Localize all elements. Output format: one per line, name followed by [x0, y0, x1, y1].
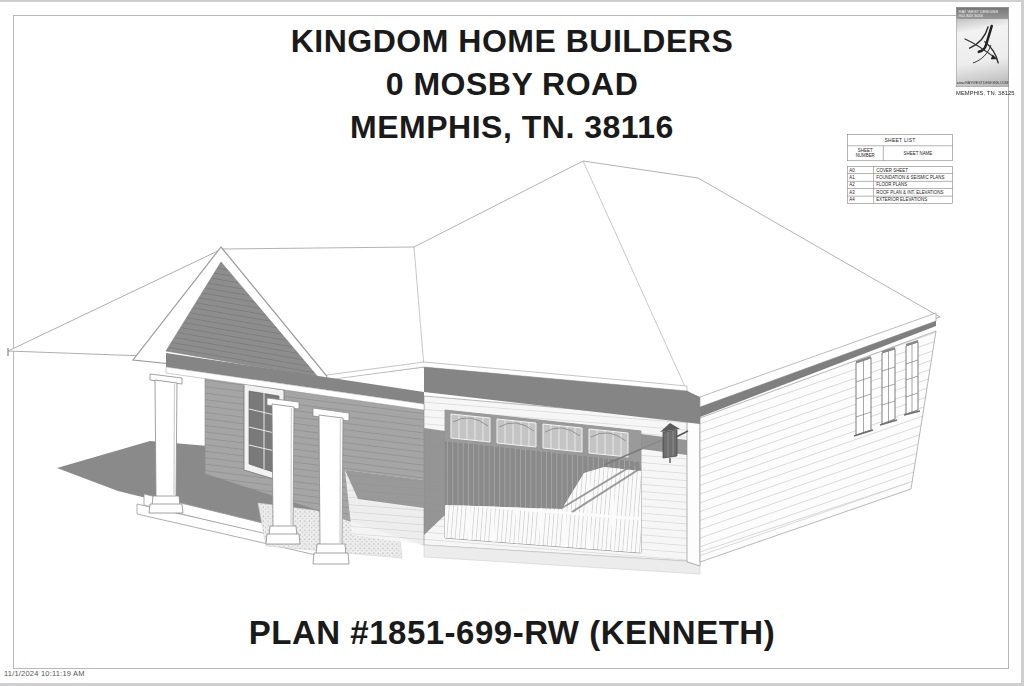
designer-stamp-box: RAY WEST DESIGNS 901 843 3056 www.RAYWES…: [956, 7, 1009, 87]
corner-trim: [687, 409, 700, 566]
site-address: 0 MOSBY ROAD: [212, 63, 812, 106]
sheet-name: FOUNDATION & SEISMIC PLANS: [874, 175, 952, 180]
print-timestamp: 11/1/2024 10:11:19 AM: [4, 669, 85, 678]
designer-phone: 901 843 3056: [959, 14, 1007, 19]
sheet-name: EXTERIOR ELEVATIONS: [874, 197, 952, 202]
designer-website: www.RAYWESTDESIGNS.COM: [957, 81, 1009, 87]
title-block: KINGDOM HOME BUILDERS 0 MOSBY ROAD MEMPH…: [212, 20, 812, 149]
sheet-list-row: A3 ROOF PLAN & INT. ELEVATIONS: [848, 189, 953, 196]
sheet-name: COVER SHEET: [874, 167, 952, 172]
plan-number-label: PLAN #1851-699-RW (KENNETH): [192, 614, 832, 652]
sheet-number: A0: [848, 167, 874, 174]
designer-logo-swoosh: [960, 24, 1006, 76]
sheet-list-row: A4 EXTERIOR ELEVATIONS: [848, 196, 953, 203]
cover-sheet-page: KINGDOM HOME BUILDERS 0 MOSBY ROAD MEMPH…: [0, 0, 1024, 686]
sheet-number: A3: [848, 189, 874, 196]
sheet-list-row: A1 FOUNDATION & SEISMIC PLANS: [848, 174, 953, 181]
sheet-list-title: SHEET LIST: [848, 135, 953, 146]
column-header-sheet-name: SHEET NAME: [883, 146, 952, 160]
sheet-name: ROOF PLAN & INT. ELEVATIONS: [874, 190, 952, 195]
designer-location: MEMPHIS, TN. 38125: [956, 90, 1008, 96]
sheet-number: A4: [848, 196, 874, 203]
column-header-sheet-number: SHEET NUMBER: [848, 146, 884, 160]
sheet-list-body: A0 COVER SHEET A1 FOUNDATION & SEISMIC P…: [847, 166, 953, 204]
sheet-list-header: SHEET LIST SHEET NUMBER SHEET NAME: [847, 134, 953, 161]
sheet-name: FLOOR PLANS: [874, 182, 952, 187]
sheet-number: A2: [848, 181, 874, 188]
designer-stamp: RAY WEST DESIGNS 901 843 3056 www.RAYWES…: [956, 7, 1011, 96]
sheet-list-row: A2 FLOOR PLANS: [848, 181, 953, 188]
sheet-list-table: SHEET LIST SHEET NUMBER SHEET NAME A0 CO…: [847, 134, 953, 204]
builder-name: KINGDOM HOME BUILDERS: [212, 20, 812, 63]
sheet-number: A1: [848, 174, 874, 181]
site-city: MEMPHIS, TN. 38116: [212, 106, 812, 149]
sheet-list-row: A0 COVER SHEET: [848, 167, 953, 174]
